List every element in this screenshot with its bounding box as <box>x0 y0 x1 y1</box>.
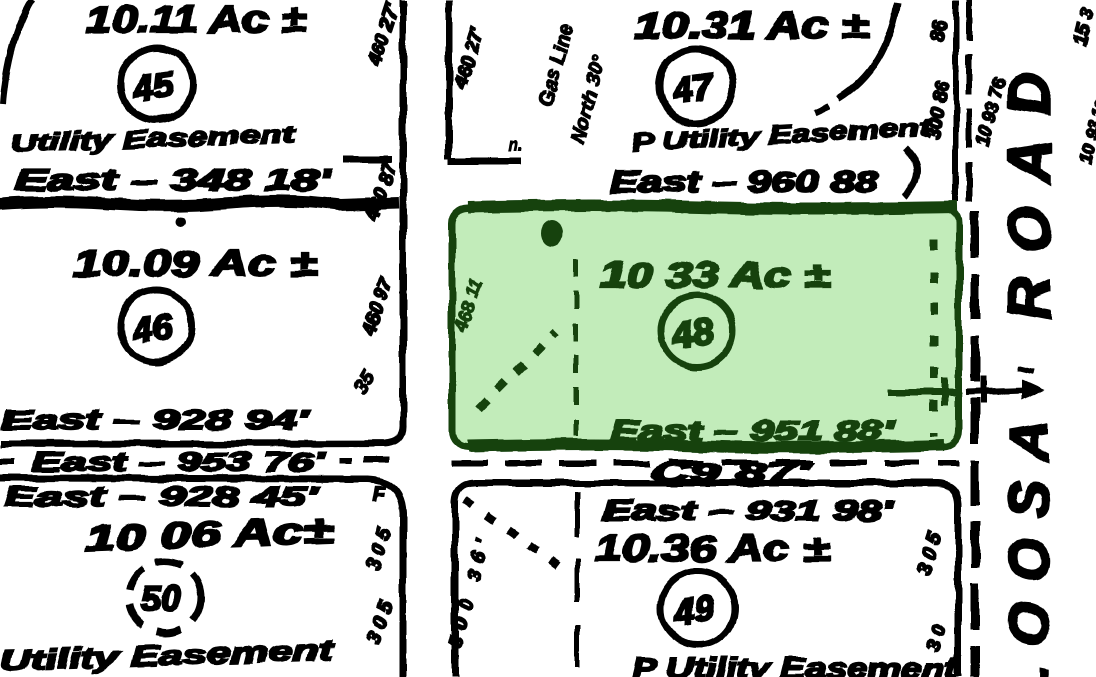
svg-text:46: 46 <box>129 305 176 351</box>
svg-text:45: 45 <box>130 63 177 109</box>
svg-text:East – 931 98': East – 931 98' <box>602 495 895 526</box>
svg-text:86: 86 <box>927 18 951 43</box>
svg-text:50: 50 <box>141 578 181 619</box>
svg-text:East – 953 76': East – 953 76' <box>32 447 327 477</box>
svg-text:10.36 Ac ±: 10.36 Ac ± <box>595 528 830 569</box>
svg-text:10.31 Ac ±: 10.31 Ac ± <box>635 5 869 46</box>
svg-text:10.11 Ac ±: 10.11 Ac ± <box>86 0 307 40</box>
svg-text:East – 928 94': East – 928 94' <box>1 404 311 435</box>
svg-text:10 06 Ac±: 10 06 Ac± <box>85 509 334 559</box>
svg-text:47: 47 <box>669 65 717 112</box>
svg-text:F: F <box>372 483 385 505</box>
svg-text:48: 48 <box>670 310 716 356</box>
svg-text:East – 951 88': East – 951 88' <box>610 415 895 446</box>
svg-text:49: 49 <box>671 587 717 633</box>
svg-text:10 33 Ac ±: 10 33 Ac ± <box>600 256 831 295</box>
svg-text:P Utility Easement: P Utility Easement <box>632 653 959 677</box>
svg-text:East – 348 18': East – 348 18' <box>15 164 331 197</box>
svg-text:n.: n. <box>508 135 523 154</box>
svg-text:East – 928 45': East – 928 45' <box>4 481 320 512</box>
svg-text:10.09 Ac ±: 10.09 Ac ± <box>73 243 318 284</box>
svg-text:East – 960 88: East – 960 88 <box>610 166 878 199</box>
svg-text:LOOSA: LOOSA <box>997 420 1060 677</box>
